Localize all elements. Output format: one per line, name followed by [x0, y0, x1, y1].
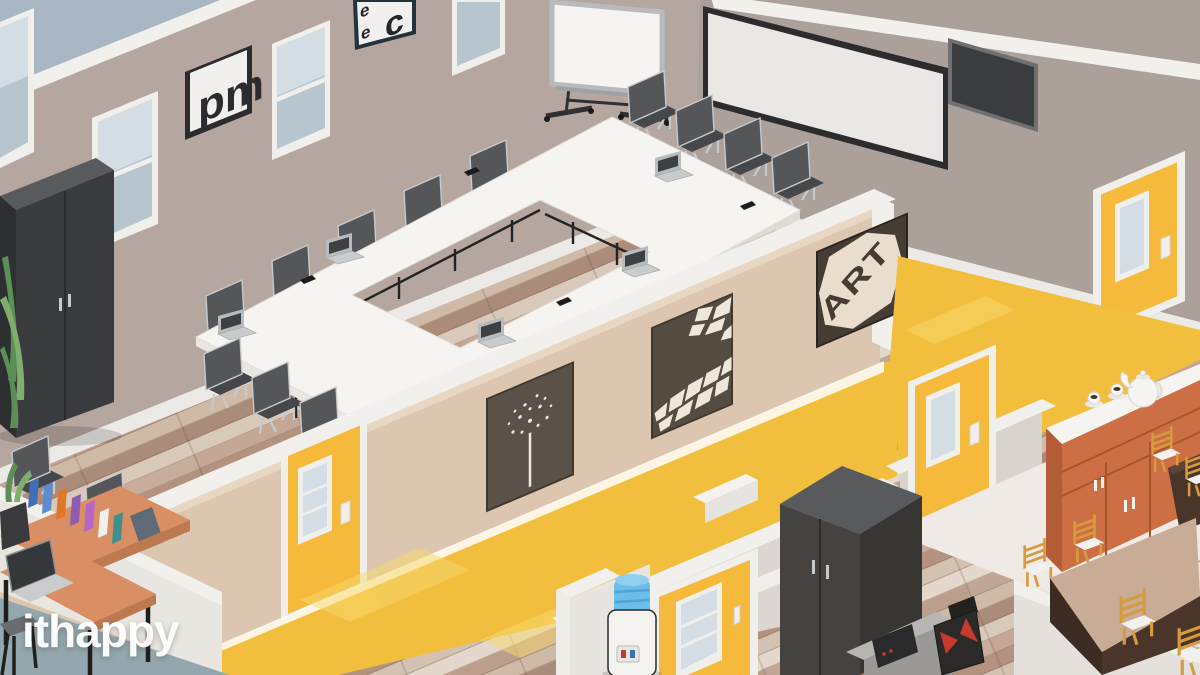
wardrobe-cabinet — [0, 158, 122, 446]
isometric-office-render: pm e e c — [0, 0, 1200, 675]
window — [272, 20, 330, 160]
eec-letter: c — [385, 1, 404, 46]
watermark: ithappy — [22, 604, 179, 658]
eec-letter: e — [361, 21, 371, 44]
window — [0, 8, 34, 168]
